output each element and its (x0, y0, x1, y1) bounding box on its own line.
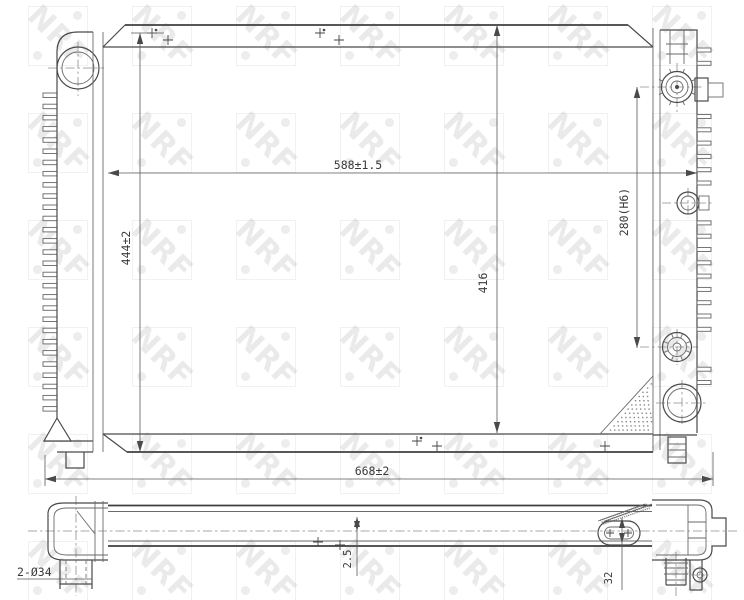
dim-port-spacing: 280(H6) (617, 188, 631, 236)
bottom-right-tank (598, 500, 726, 590)
bottom-pipe (66, 452, 84, 468)
dimensions-bottom: 2.5 32 (342, 517, 625, 590)
dim-top-width: 588±1.5 (334, 158, 382, 172)
left-header-flange (93, 32, 103, 452)
right-tank-ribs (697, 48, 711, 385)
technical-drawing: 588±1.5 444±2 416 280(H6) 668±2 (0, 0, 744, 600)
radiator-drawing-canvas: NRFNRFNRFNRFNRFNRFNRFNRFNRFNRFNRFNRFNRFN… (0, 0, 744, 600)
overflow-nozzle (695, 78, 723, 101)
dim-overall-width: 668±2 (355, 464, 390, 478)
dim-core-offset: 2.5 (342, 550, 354, 569)
core-stipple (600, 376, 653, 434)
main-view (43, 25, 723, 468)
dim-pipe-diameter: 2-Ø34 (17, 565, 52, 579)
side-bolt (691, 566, 709, 584)
datum-crosses (147, 28, 610, 451)
mount-bracket (44, 418, 71, 441)
right-tank (653, 30, 723, 463)
dim-left-height: 444±2 (119, 231, 133, 266)
bottom-view: 2-Ø34 (17, 500, 726, 590)
filler-neck (666, 30, 688, 64)
dim-bracket-height: 32 (603, 572, 615, 585)
dim-core-height: 416 (476, 273, 490, 294)
left-tank-fins (43, 93, 57, 411)
core (103, 25, 653, 452)
dimensions-main: 588±1.5 444±2 416 280(H6) 668±2 (45, 25, 713, 486)
bottom-core-strip (108, 506, 652, 551)
right-header-flange (653, 28, 660, 452)
centerlines (28, 42, 737, 597)
bottom-left-tank: 2-Ø34 (17, 501, 108, 589)
lower-mount-pin (668, 437, 686, 463)
